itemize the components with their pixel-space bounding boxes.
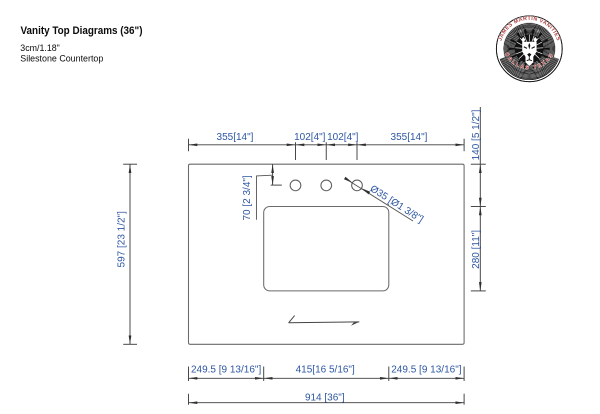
svg-text:355[14"]: 355[14"] — [217, 132, 254, 143]
svg-text:415[16 5/16"]: 415[16 5/16"] — [296, 365, 355, 376]
svg-text:102[4"]: 102[4"] — [294, 132, 326, 143]
svg-text:355[14"]: 355[14"] — [391, 132, 428, 143]
svg-text:70 [2 3/4"]: 70 [2 3/4"] — [242, 175, 253, 220]
svg-text:249.5 [9 13/16"]: 249.5 [9 13/16"] — [191, 365, 261, 376]
svg-text:Silestone Countertop: Silestone Countertop — [20, 52, 103, 63]
svg-text:140 [5 1/2"]: 140 [5 1/2"] — [471, 109, 482, 160]
svg-text:249.5 [9 13/16"]: 249.5 [9 13/16"] — [391, 365, 461, 376]
svg-text:280 [11"]: 280 [11"] — [471, 230, 482, 269]
svg-text:Vanity Top Diagrams (36"): Vanity Top Diagrams (36") — [21, 25, 143, 37]
svg-text:597 [23 1/2"]: 597 [23 1/2"] — [116, 211, 127, 268]
svg-text:102[4"]: 102[4"] — [327, 132, 359, 143]
svg-text:914 [36"]: 914 [36"] — [305, 392, 345, 403]
